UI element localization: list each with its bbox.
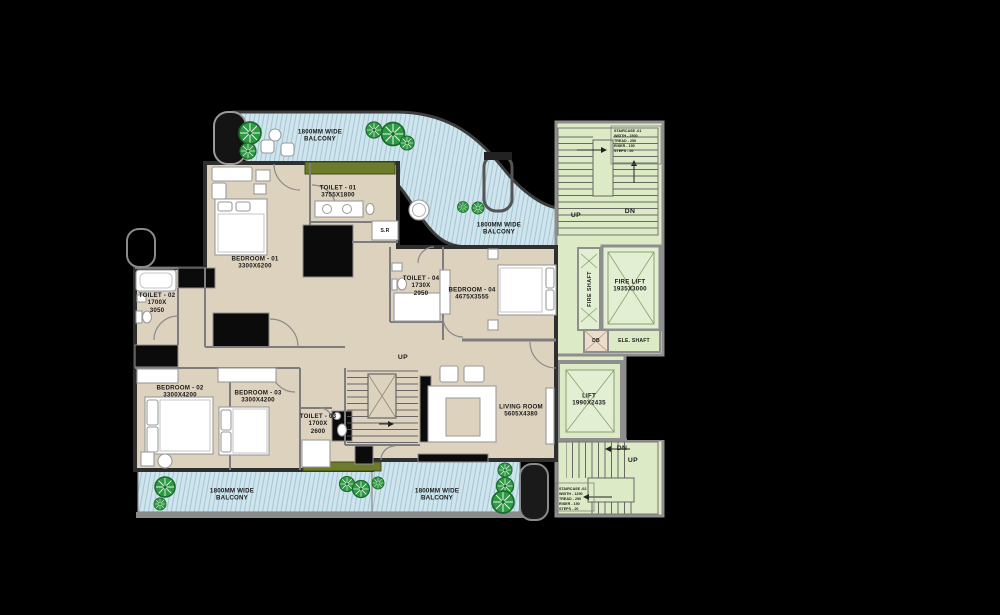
fire-shaft	[578, 248, 600, 330]
staircase-core	[556, 122, 665, 516]
bedroom-01-furniture	[212, 167, 270, 255]
floor-plan: 1800MM WIDE BALCONY1800MM WIDE BALCONYTO…	[0, 0, 1000, 615]
lift	[558, 362, 622, 440]
fire-lift	[602, 246, 660, 330]
staircase-01	[558, 126, 661, 235]
bedroom-03-furniture	[218, 368, 276, 455]
floor-plan-drawing	[0, 0, 1000, 615]
electrical-shaft	[608, 330, 660, 352]
db-box	[584, 330, 608, 352]
planter-top	[305, 162, 395, 174]
staircase-mid	[347, 370, 418, 443]
